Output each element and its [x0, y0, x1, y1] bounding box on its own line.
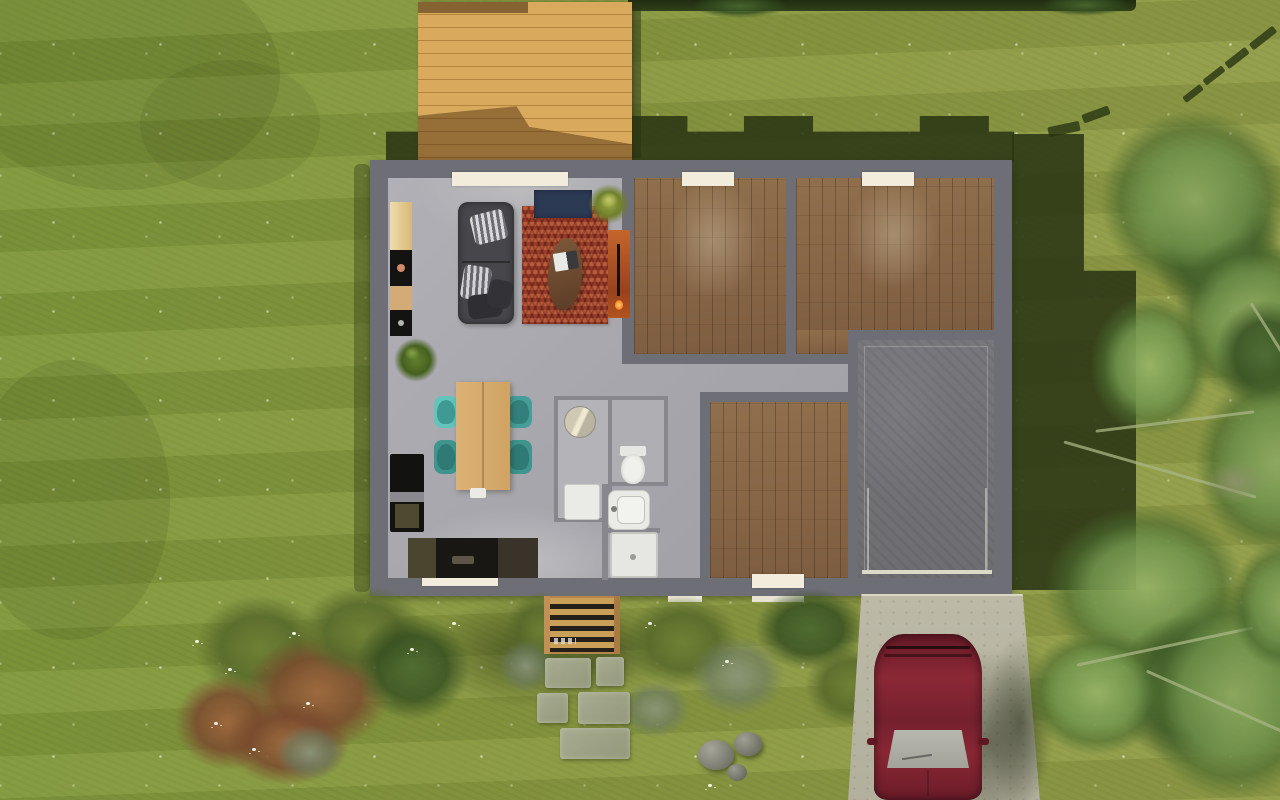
car-roof-rail — [884, 654, 972, 657]
napkin — [470, 488, 486, 498]
white-flowers — [252, 748, 256, 751]
wall-garage-top — [848, 330, 994, 340]
kitchen-column-tan — [390, 202, 412, 250]
wall-bedroom3-top — [700, 392, 852, 402]
navy-throw — [534, 190, 592, 218]
white-flowers — [228, 668, 232, 671]
deck-shadow — [418, 2, 632, 160]
branch-shadow — [1202, 65, 1225, 85]
window-bedroom2 — [862, 172, 914, 186]
white-flowers — [214, 722, 218, 725]
kitchen-column-oven — [390, 250, 412, 286]
shower-drain — [630, 554, 636, 560]
kitchen-column-drawer — [390, 286, 412, 310]
sofa-pillow-striped — [469, 208, 509, 245]
plant-window-leaf — [600, 192, 618, 208]
car-roof-rail — [886, 646, 970, 649]
fridge-drawer — [395, 504, 419, 528]
terrace-deck — [418, 2, 632, 160]
bush-gray — [620, 680, 690, 738]
window-bedroom3 — [752, 574, 804, 588]
sofa-seam — [462, 261, 510, 263]
garage-door-line — [862, 570, 992, 574]
kitchen-counter — [408, 538, 538, 578]
garage-track — [867, 488, 869, 570]
aerial-render — [0, 0, 1280, 800]
car-mirror — [867, 738, 878, 745]
wall-bedroom1-bedroom2 — [786, 178, 796, 364]
fireplace — [608, 230, 630, 318]
oven-knob — [397, 264, 405, 272]
fridge-unit — [390, 454, 424, 532]
boulder — [734, 732, 762, 756]
wall-under-bedrooms — [622, 354, 858, 364]
grass-patch — [0, 360, 170, 640]
house-shadow-left — [354, 164, 370, 592]
toilet-bowl — [621, 454, 645, 484]
bedroom-3-floor — [710, 402, 848, 578]
white-flowers — [306, 702, 310, 705]
basin-inner — [617, 496, 645, 524]
dining-chair — [434, 396, 458, 428]
garage-inner-frame — [864, 346, 988, 574]
garage-track — [985, 488, 987, 570]
white-flowers — [292, 632, 296, 635]
table-seam — [482, 382, 484, 490]
window-living-top — [452, 172, 568, 186]
counter-seg — [498, 538, 538, 578]
tree-trunk — [1205, 462, 1267, 502]
stepping-stone — [578, 692, 630, 724]
mirror-round — [564, 406, 596, 438]
white-flowers — [725, 660, 729, 663]
wall-garage-left — [848, 330, 858, 578]
branch-shadow — [1224, 47, 1249, 69]
dining-table — [456, 382, 510, 490]
bush-gray — [275, 725, 345, 780]
deck-shadow-top — [418, 2, 528, 13]
stepping-stone — [560, 728, 630, 759]
window-light-bedroom2 — [848, 180, 938, 290]
kitchen-column-base — [390, 310, 412, 336]
cabinet-knob — [398, 320, 404, 326]
faucet — [611, 506, 617, 512]
boulder — [698, 740, 734, 770]
grass-patch — [140, 60, 320, 190]
fireplace-flame — [615, 300, 623, 310]
fridge-band — [390, 492, 424, 502]
sofa — [458, 202, 514, 324]
stepping-stone — [537, 693, 568, 723]
deck-edge-shadow — [632, 6, 641, 158]
branch-shadow — [1182, 84, 1204, 103]
white-flowers — [452, 622, 456, 625]
hedge-bush — [1040, 0, 1130, 16]
wall-bedroom3-left — [700, 392, 710, 578]
entrance-steps — [544, 596, 620, 654]
window-bedroom1 — [682, 172, 734, 186]
white-flowers — [648, 622, 652, 625]
stepping-stone — [596, 657, 624, 686]
washing-machine — [564, 484, 600, 520]
plant-floor — [394, 338, 438, 382]
branch-shadow — [1249, 26, 1278, 51]
counter-item — [452, 556, 474, 564]
white-flowers — [195, 640, 199, 643]
shower-tray — [610, 532, 658, 578]
hedge-bush — [692, 0, 788, 18]
sofa-pillow-dark — [485, 278, 514, 310]
counter-seg — [408, 538, 436, 578]
car — [874, 634, 982, 800]
car-windshield — [887, 730, 969, 768]
car-mirror — [978, 738, 989, 745]
white-flowers — [410, 648, 414, 651]
boulder — [727, 764, 747, 781]
white-flowers — [708, 784, 712, 787]
plant-floor-leaf — [404, 346, 420, 360]
step-pebbles — [554, 638, 576, 644]
magazine — [553, 250, 580, 272]
bedroom-2-floor-ext — [796, 330, 848, 354]
dining-chair — [434, 440, 458, 474]
branch-shadow — [1081, 105, 1110, 123]
window-light-bedroom1 — [668, 180, 758, 300]
tree-canopy — [1090, 295, 1210, 435]
washbasin — [608, 490, 650, 530]
bush-dark — [355, 615, 470, 720]
stepping-stone — [545, 658, 591, 688]
fireplace-slot — [617, 244, 620, 296]
car-hood-crease — [927, 770, 929, 796]
